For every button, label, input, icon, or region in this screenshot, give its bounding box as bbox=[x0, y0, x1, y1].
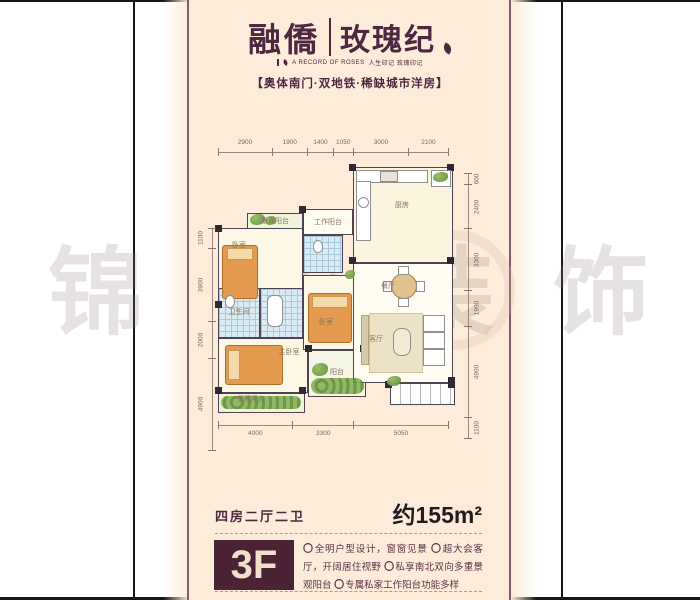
dashed-divider bbox=[215, 591, 482, 592]
dimension-label: 3300 bbox=[474, 253, 481, 267]
feature-bullet-icon: 〇 bbox=[334, 580, 344, 591]
room-label: 卧室 bbox=[232, 240, 246, 250]
sofa-icon bbox=[423, 349, 445, 366]
column bbox=[215, 225, 222, 232]
dimension-tick bbox=[218, 421, 219, 429]
toilet-icon bbox=[313, 240, 323, 253]
room-label: 景观阳台 bbox=[261, 216, 289, 226]
entry-porch bbox=[390, 383, 455, 405]
room-label: 工作阳台 bbox=[314, 217, 342, 227]
coffee-table-icon bbox=[393, 328, 411, 356]
leaf-icon bbox=[282, 59, 289, 66]
dimension-label: 3300 bbox=[316, 430, 330, 437]
chair-icon bbox=[398, 266, 409, 275]
dimension-label: 2400 bbox=[474, 199, 481, 213]
feature-text: 专属私家工作阳台功能多样 bbox=[345, 580, 459, 591]
dimension-label: 2000 bbox=[198, 333, 205, 347]
dimension-tick bbox=[208, 321, 216, 322]
dimension-line bbox=[218, 425, 448, 426]
dimension-label: 4900 bbox=[474, 365, 481, 379]
bathtub-icon bbox=[267, 295, 283, 327]
greenery-band bbox=[311, 378, 364, 394]
chair-icon bbox=[398, 298, 409, 307]
dimension-label: 1900 bbox=[474, 301, 481, 315]
logo-name-right: 玫瑰纪 bbox=[340, 25, 436, 57]
brand-header: 融僑 玫瑰纪 A RECORD OF ROSES 人生印记 玫瑰印记 【奥体南门… bbox=[163, 10, 537, 91]
column bbox=[215, 301, 222, 308]
floor-number-badge: 3F bbox=[214, 540, 294, 590]
sofa-icon bbox=[423, 315, 445, 332]
dimension-tick bbox=[353, 421, 354, 429]
dimension-tick bbox=[208, 450, 216, 451]
dimension-tick bbox=[464, 326, 472, 327]
kitchen-counter bbox=[356, 181, 371, 241]
sink-icon bbox=[358, 197, 369, 208]
selling-points-subtitle: 【奥体南门·双地铁·稀缺城市洋房】 bbox=[163, 75, 537, 91]
dimension-label: 1100 bbox=[198, 231, 205, 245]
dimension-tick bbox=[408, 148, 409, 156]
bed-icon bbox=[222, 245, 258, 299]
dimension-label: 1900 bbox=[282, 139, 296, 146]
room-label: 厨房 bbox=[395, 200, 409, 210]
room-label: 卫生间 bbox=[229, 307, 250, 317]
dimension-label: 1400 bbox=[313, 139, 327, 146]
dimension-label: 4000 bbox=[248, 430, 262, 437]
bed-icon bbox=[225, 345, 283, 385]
dashed-divider bbox=[215, 533, 482, 534]
dimension-tick bbox=[307, 148, 308, 156]
dimension-tick bbox=[272, 148, 273, 156]
dimension-tick bbox=[292, 421, 293, 429]
logo-name-left: 融僑 bbox=[248, 23, 320, 56]
tv-cabinet bbox=[361, 315, 369, 365]
dimension-tick bbox=[208, 248, 216, 249]
column bbox=[349, 257, 356, 264]
dimension-tick bbox=[208, 228, 216, 229]
logo: 融僑 玫瑰纪 bbox=[163, 10, 537, 56]
dimension-line bbox=[212, 228, 213, 450]
dimension-label: 2900 bbox=[238, 139, 252, 146]
tagline-en: A RECORD OF ROSES bbox=[292, 60, 365, 66]
layout-type-label: 四房二厅二卫 bbox=[215, 506, 305, 525]
column bbox=[305, 345, 312, 352]
dimension-tick bbox=[353, 148, 354, 156]
sofa-icon bbox=[423, 332, 445, 349]
dimension-tick bbox=[218, 148, 219, 156]
dimension-tick bbox=[208, 358, 216, 359]
room-label: 主卧室 bbox=[279, 347, 300, 357]
feature-list: 〇全明户型设计，窗窗见景 〇超大会客厅，开阔居住视野 〇私享南北双向多重景观阳台… bbox=[303, 541, 483, 595]
column bbox=[349, 164, 356, 171]
dimension-label: 1050 bbox=[336, 139, 350, 146]
column bbox=[299, 206, 306, 213]
room-label: 阳台 bbox=[330, 367, 344, 377]
dimension-label: 3900 bbox=[198, 278, 205, 292]
dimension-tick bbox=[464, 173, 472, 174]
column bbox=[299, 387, 306, 394]
room-label: 卧室 bbox=[319, 317, 333, 327]
watermark-char: 饰 bbox=[553, 245, 649, 341]
dimension-label: 600 bbox=[474, 173, 481, 184]
dimension-label: 2100 bbox=[421, 139, 435, 146]
dimension-label: 1100 bbox=[474, 421, 481, 435]
room-bathroom-master bbox=[303, 235, 343, 273]
dimension-tick bbox=[464, 290, 472, 291]
dimension-tick bbox=[333, 148, 334, 156]
tagline: A RECORD OF ROSES 人生印记 玫瑰印记 bbox=[163, 58, 537, 67]
area-label: 约155m² bbox=[393, 496, 482, 530]
leaf-icon bbox=[441, 42, 453, 54]
feature-text: 全明户型设计，窗窗见景 bbox=[315, 544, 431, 555]
tagline-cn: 人生印记 玫瑰印记 bbox=[369, 58, 423, 67]
column bbox=[215, 387, 222, 394]
feature-bullet-icon: 〇 bbox=[431, 544, 442, 555]
room-label: 餐厅 bbox=[381, 281, 395, 291]
dimension-label: 4900 bbox=[198, 397, 205, 411]
column bbox=[447, 257, 454, 264]
stove-icon bbox=[380, 171, 398, 182]
dimension-tick bbox=[464, 417, 472, 418]
flyer-page: { "brand": { "name_left": "融僑", "name_ri… bbox=[0, 0, 700, 600]
dimension-tick bbox=[448, 421, 449, 429]
watermark-char: 锦 bbox=[48, 245, 144, 341]
dimension-label: 3000 bbox=[374, 139, 388, 146]
column bbox=[448, 381, 455, 388]
dimension-tick bbox=[464, 184, 472, 185]
dimension-label: 5050 bbox=[394, 430, 408, 437]
room-label: 客厅 bbox=[369, 334, 383, 344]
tagline-bar bbox=[277, 59, 279, 66]
feature-bullet-icon: 〇 bbox=[303, 544, 314, 555]
logo-divider bbox=[329, 18, 331, 56]
chair-icon bbox=[416, 281, 425, 292]
dimension-tick bbox=[464, 228, 472, 229]
dimension-tick bbox=[448, 148, 449, 156]
feature-bullet-icon: 〇 bbox=[384, 562, 394, 573]
dimension-tick bbox=[464, 438, 472, 439]
dimension-line bbox=[468, 173, 469, 438]
room-label: 景观阳台 bbox=[237, 394, 265, 404]
floor-plan: 2900190014001050300021004000330050501100… bbox=[195, 125, 485, 475]
